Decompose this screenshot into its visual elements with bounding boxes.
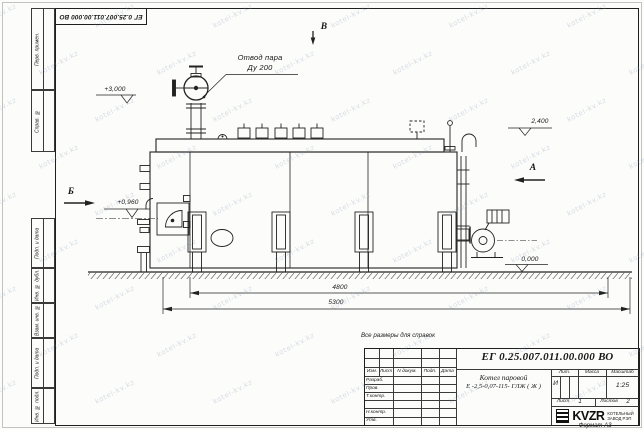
tb-sheet-label: Лист [553, 399, 573, 404]
tb-product-name-line1: Котел паровой [457, 373, 550, 382]
tb-header-list: Лист [379, 369, 393, 374]
tb-lit-value: И [551, 380, 560, 387]
tb-mass-header: Масса [578, 370, 606, 375]
drawing-sheet: Перв. примен. Справ. № Подп. и дата Инв.… [0, 0, 644, 430]
tb-header-doc: N докум. [393, 369, 421, 374]
elevation-drum-label: 2,400 [522, 118, 558, 125]
dimension-4800-label: 4800 [320, 284, 360, 291]
dimension-lines [163, 277, 630, 314]
view-v-letter: В [317, 22, 331, 32]
title-block: ЕГ 0.25.007.011.00.000 ВО Котел паровой … [364, 348, 640, 426]
tb-header-sign: Подп. [421, 369, 439, 374]
support-legs [188, 212, 456, 272]
tb-lit-header: Лит. [551, 370, 578, 375]
ground-line [88, 272, 632, 279]
tb-row-developed: Разраб. [366, 378, 392, 383]
kvzr-logo-icon [556, 409, 569, 423]
tb-doc-number: ЕГ 0.25.007.011.00.000 ВО [456, 351, 639, 363]
format-note: Формат А3 [560, 423, 630, 429]
elevation-top-label: +3,000 [95, 86, 135, 93]
tb-scale-value: 1:25 [606, 382, 639, 389]
kvzr-company-name: КОТЕЛЬНЫЙ ЗАВОД РЭП [607, 411, 633, 421]
tb-header-izm: Изм. [365, 369, 379, 374]
dimension-5300-label: 5300 [316, 299, 356, 306]
elevation-burner-label: +0,960 [106, 199, 150, 206]
tb-header-date: Дата [439, 369, 456, 374]
ladder-and-blower [457, 156, 537, 268]
elevation-marks [96, 95, 552, 272]
tb-sheets-value: 2 [621, 399, 635, 405]
steam-outlet-label-line2: Ду 200 [224, 63, 296, 72]
front-details [96, 166, 233, 273]
section-a-letter: А [526, 163, 540, 173]
tb-sheet-value: 1 [573, 399, 587, 405]
tb-scale-header: Масштаб [606, 370, 639, 375]
tb-row-checked: Пров. [366, 386, 392, 391]
section-arrows [64, 31, 545, 206]
steam-outlet-valve [173, 67, 209, 140]
top-fittings [218, 121, 476, 152]
tb-row-ncontrol: Н.контр. [366, 410, 392, 415]
tb-sheets-label: Листов [597, 399, 621, 404]
kvzr-logo-text: KVZR [572, 409, 604, 423]
steam-label-leader [203, 75, 298, 99]
tb-product-name-line2: Е -2,5-0,07-115- ГЛЖ ( Ж ) [457, 383, 550, 390]
elevation-ground-label: 0,000 [512, 256, 548, 263]
reference-dimensions-note: Все размеры для справок [352, 332, 444, 339]
steam-outlet-label-line1: Отвод пара [224, 53, 296, 62]
tb-row-tcontrol: Т.контр. [366, 394, 392, 399]
section-b-letter: Б [64, 187, 78, 197]
tb-row-approved: Утв. [366, 418, 392, 423]
